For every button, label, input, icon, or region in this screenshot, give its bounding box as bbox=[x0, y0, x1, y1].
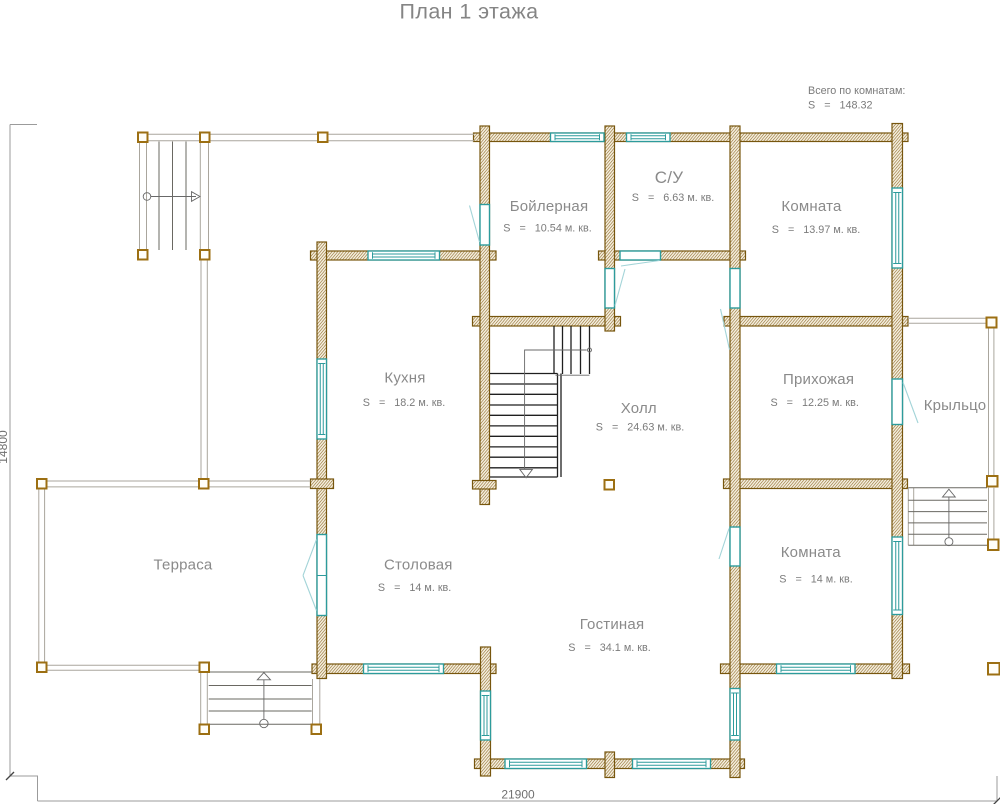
svg-text:Бойлерная: Бойлерная bbox=[510, 198, 589, 215]
svg-text:Кухня: Кухня bbox=[384, 370, 425, 387]
svg-text:Гостиная: Гостиная bbox=[580, 616, 645, 633]
svg-text:S = 6.63 м. кв.: S = 6.63 м. кв. bbox=[632, 192, 714, 204]
svg-text:S = 12.25 м. кв.: S = 12.25 м. кв. bbox=[770, 397, 858, 409]
svg-text:План 1 этажа: План 1 этажа bbox=[400, 0, 539, 24]
svg-text:Крыльцо: Крыльцо bbox=[924, 397, 987, 414]
svg-text:Холл: Холл bbox=[621, 400, 657, 417]
svg-text:Комната: Комната bbox=[781, 198, 842, 215]
svg-text:S = 34.1 м. кв.: S = 34.1 м. кв. bbox=[568, 642, 650, 654]
svg-text:Всего по комнатам:: Всего по комнатам: bbox=[808, 85, 905, 97]
svg-text:14800: 14800 bbox=[0, 430, 10, 464]
svg-text:С/У: С/У bbox=[655, 168, 683, 187]
svg-text:21900: 21900 bbox=[501, 788, 535, 802]
svg-text:Прихожая: Прихожая bbox=[783, 371, 854, 388]
svg-text:S = 24.63 м. кв.: S = 24.63 м. кв. bbox=[596, 422, 684, 434]
svg-text:Комната: Комната bbox=[781, 544, 842, 561]
svg-text:Столовая: Столовая bbox=[384, 557, 453, 574]
svg-text:S = 148.32: S = 148.32 bbox=[808, 100, 873, 112]
svg-text:S = 10.54 м. кв.: S = 10.54 м. кв. bbox=[503, 223, 591, 235]
svg-text:S = 14 м. кв.: S = 14 м. кв. bbox=[378, 582, 451, 594]
svg-text:Терраса: Терраса bbox=[154, 557, 213, 574]
svg-text:S = 13.97 м. кв.: S = 13.97 м. кв. bbox=[772, 224, 860, 236]
svg-text:S = 14 м. кв.: S = 14 м. кв. bbox=[779, 574, 852, 586]
svg-text:S = 18.2 м. кв.: S = 18.2 м. кв. bbox=[363, 397, 445, 409]
